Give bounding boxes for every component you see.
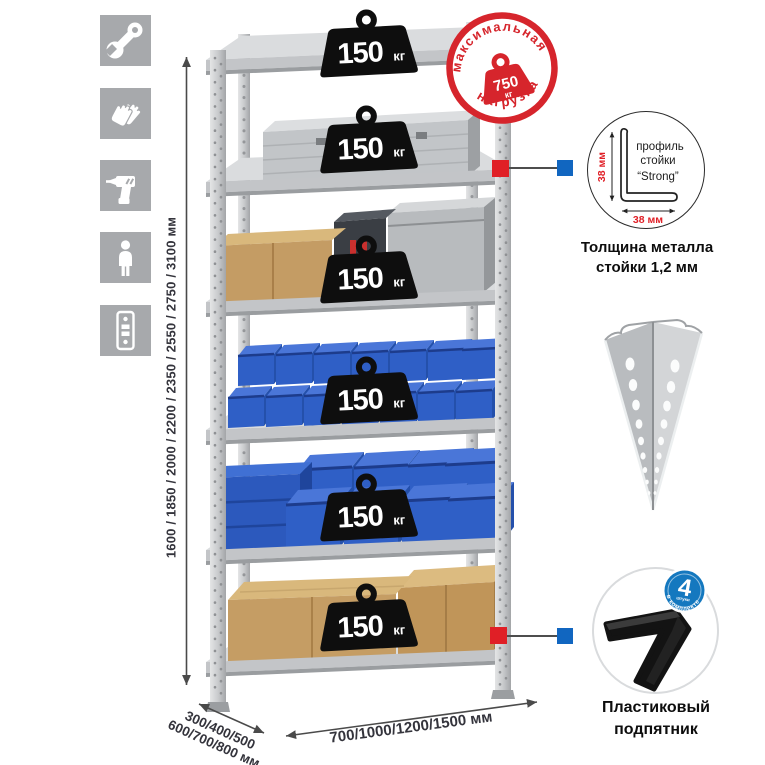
right-foot [491,690,515,699]
post-profile-detail: 38 мм 38 мм профиль стойки “Strong” [587,111,705,229]
svg-text:150: 150 [337,500,384,534]
svg-text:кг: кг [393,274,406,290]
svg-text:150: 150 [337,383,384,417]
height-dimensions-label: 1600 / 1850 / 2000 / 2200 / 2350 / 2550 … [164,168,179,608]
callout-red-square-top [492,160,509,177]
angle-post-image [595,300,715,535]
svg-text:кг: кг [393,512,406,528]
included-count-badge: 4 штуки в комплекте [657,563,711,617]
profile-callout [492,160,573,177]
svg-text:150: 150 [337,132,384,166]
svg-text:“Strong”: “Strong” [637,171,679,183]
foot-caption: Пластиковый подпятник [570,697,742,740]
svg-text:150: 150 [337,610,384,644]
left-foot [206,702,230,712]
svg-text:профиль: профиль [636,141,684,153]
svg-text:кг: кг [393,144,406,160]
svg-text:150: 150 [337,262,384,296]
svg-text:38 мм: 38 мм [596,152,608,182]
weight-shelf-1: 150 кг [317,10,418,78]
svg-text:кг: кг [393,48,406,64]
svg-text:38 мм: 38 мм [633,214,663,226]
svg-text:стойки: стойки [640,155,675,167]
svg-text:кг: кг [393,622,406,638]
foot-callout [490,627,573,644]
callout-blue-square-bottom [557,628,573,644]
callout-blue-square-top [557,160,573,176]
svg-text:кг: кг [393,395,406,411]
profile-caption: Толщина металла стойки 1,2 мм [561,238,733,279]
product-infographic: 150 кг 150 кг 150 кг 150 кг 150 кг 150 к… [0,0,765,765]
svg-text:150: 150 [337,36,384,70]
plastic-foot-drawing [606,611,689,689]
callout-red-square-bottom [490,627,507,644]
